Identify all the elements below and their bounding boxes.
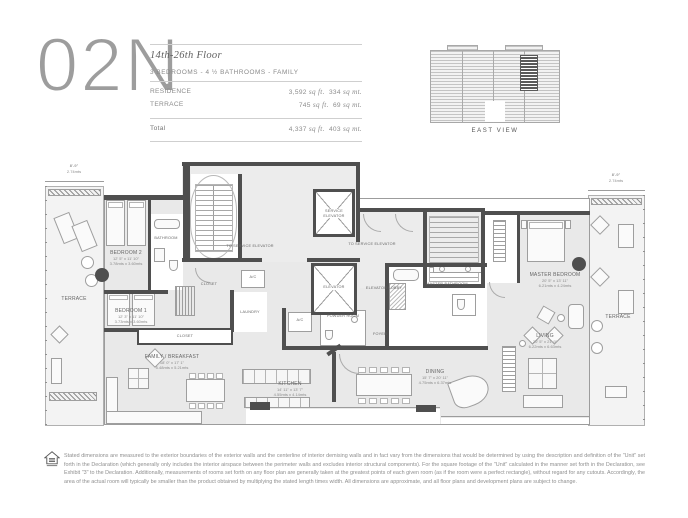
- exterior-notch: [246, 409, 440, 424]
- breakfast-table: [186, 379, 225, 402]
- pillow: [109, 295, 128, 300]
- wall: [356, 162, 360, 242]
- wall: [423, 212, 427, 288]
- room-label-family-breakfast: FAMILY / BREAKFAST18' 0" x 17' 1"5.48mts…: [140, 354, 204, 370]
- pillow: [529, 222, 563, 229]
- room-label-elevator-lobby: ELEVATOR LOBBY: [363, 286, 405, 291]
- area-label: TERRACE: [150, 101, 184, 109]
- structural-column: [572, 257, 586, 271]
- room-label-kitchen: KITCHEN14' 11" x 13' 7"4.55mts x 4.14mts: [258, 381, 322, 397]
- facade-joint: [462, 50, 463, 123]
- terrace-left: [45, 186, 104, 426]
- terrace-table: [81, 256, 94, 269]
- chair: [369, 398, 377, 404]
- toilet: [457, 299, 465, 310]
- pillow: [129, 202, 144, 208]
- room-label-terrace: TERRACE: [593, 314, 643, 320]
- wall: [182, 162, 360, 166]
- area-row-terrace: TERRACE 745 sq ft. 69 sq mt.: [150, 101, 362, 109]
- chair: [391, 398, 399, 404]
- wall: [104, 195, 184, 200]
- outdoor-sofa: [618, 224, 634, 248]
- terrace-table: [591, 320, 603, 332]
- unit-info-panel: 14th-26th Floor 3 BEDROOMS - 4 ½ BATHROO…: [150, 44, 362, 144]
- chair: [380, 398, 388, 404]
- toilet: [169, 260, 178, 271]
- room-label-service-elevator: SERVICE ELEVATOR: [316, 209, 352, 218]
- wall: [238, 174, 242, 262]
- wall: [517, 215, 520, 283]
- wall: [104, 290, 168, 294]
- room-label-dining: DINING15' 7" x 20' 11"4.75mts x 6.37mts: [403, 369, 467, 385]
- equal-housing-icon: [44, 451, 60, 467]
- area-value: 3,592 sq ft. 334 sq mt.: [289, 88, 362, 96]
- room-label-to-service-elevator: TO SERVICE ELEVATOR: [345, 242, 399, 247]
- wall: [481, 212, 485, 288]
- divider: [150, 141, 362, 142]
- dimension-right: 8'-9"2.74mts: [587, 173, 645, 183]
- room-label-living: LIVING20' 5" x 21' 9"6.22mts x 6.63mts: [513, 333, 577, 349]
- chair: [189, 403, 196, 409]
- area-label: Total: [150, 125, 165, 133]
- area-row-total: Total 4,337 sq ft. 403 sq mt.: [150, 125, 362, 133]
- stair-1-treads: [195, 184, 233, 252]
- outdoor-sofa: [618, 290, 634, 314]
- chair: [207, 373, 214, 379]
- wall-pier: [250, 402, 270, 410]
- unit-subtitle: 3 BEDROOMS - 4 ½ BATHROOMS - FAMILY: [150, 69, 299, 76]
- coffee-table: [128, 368, 149, 389]
- area-value: 4,337 sq ft. 403 sq mt.: [289, 125, 362, 133]
- wall-pier: [416, 405, 436, 412]
- area-row-residence: RESIDENCE 3,592 sq ft. 334 sq mt.: [150, 88, 362, 96]
- terrace-mullions: [643, 195, 645, 426]
- terrace-table: [591, 342, 603, 354]
- wall: [307, 258, 360, 262]
- planter: [49, 392, 97, 401]
- media-console: [502, 346, 516, 392]
- room-label-to-service-elevator: TO SERVICE ELEVATOR: [223, 244, 277, 249]
- chair: [358, 398, 366, 404]
- room-label-master-bedroom: MASTER BEDROOM20' 5" x 13' 11"6.21mts x …: [523, 272, 587, 288]
- keyplan-caption: EAST VIEW: [430, 128, 560, 134]
- wall: [332, 352, 336, 402]
- room-label-closet: CLOSET: [191, 282, 227, 287]
- room-label-bathroom: BATHROOM: [146, 236, 186, 241]
- glass-wall-line: [441, 416, 589, 417]
- divider: [150, 44, 362, 45]
- pillow: [134, 295, 153, 300]
- outdoor-sofa: [51, 358, 62, 384]
- sofa: [523, 395, 563, 408]
- wall: [385, 263, 389, 350]
- chair: [369, 367, 377, 373]
- nightstand: [565, 220, 571, 229]
- room-label-bedroom-2: BEDROOM 212' 5" x 11' 10"3.78mts x 3.60m…: [95, 250, 157, 266]
- coffee-table: [528, 358, 557, 389]
- dimension-line: [588, 190, 645, 191]
- room-label-foyer: FOYER: [359, 332, 401, 337]
- dimension-line: [45, 181, 104, 182]
- chair: [216, 403, 223, 409]
- divider: [150, 118, 362, 119]
- chair: [216, 373, 223, 379]
- chair: [198, 403, 205, 409]
- unit-location-highlight: [520, 55, 538, 91]
- wall: [182, 258, 262, 262]
- room-label-master-bathroom: MASTER BATHROOM: [419, 282, 475, 287]
- sectional-sofa: [106, 411, 202, 424]
- wardrobe: [175, 286, 195, 316]
- chair: [207, 403, 214, 409]
- nightstand: [521, 220, 527, 229]
- chaise: [568, 304, 584, 329]
- building-entry-gap: [485, 101, 505, 122]
- wall: [282, 308, 286, 350]
- room-label-powder-room: POWDER ROOM: [322, 314, 364, 319]
- wall: [183, 162, 190, 262]
- structural-column: [95, 268, 109, 282]
- chair: [189, 373, 196, 379]
- dimension-left: 8'-9"2.74mts: [45, 164, 103, 174]
- floor-range: 14th-26th Floor: [150, 50, 222, 61]
- closet-shelving: [493, 220, 506, 262]
- elevator-shaft: ELEVATOR: [311, 263, 357, 315]
- room-label-laundry: LAUNDRY: [232, 310, 268, 315]
- wall: [104, 328, 138, 332]
- toilet: [325, 330, 333, 340]
- wall: [385, 263, 487, 267]
- side-table: [557, 314, 565, 322]
- area-label: RESIDENCE: [150, 88, 191, 96]
- closet-strip: CLOSET: [137, 328, 233, 345]
- disclaimer-text: Stated dimensions are measured to the ex…: [64, 452, 645, 486]
- room-label-ac: A/C: [288, 318, 312, 323]
- divider: [150, 81, 362, 82]
- chair: [402, 398, 410, 404]
- pillow: [108, 202, 123, 208]
- chair: [380, 367, 388, 373]
- exterior-notch: [441, 418, 589, 424]
- room-label-elevator: ELEVATOR: [314, 285, 354, 290]
- room-label-closet: CLOSET: [139, 334, 231, 339]
- planter: [591, 198, 642, 205]
- room-label-ac: A/C: [241, 275, 265, 280]
- bathtub: [393, 269, 419, 281]
- terrace-table: [605, 386, 627, 398]
- bathtub: [154, 219, 180, 229]
- area-value: 745 sq ft. 69 sq mt.: [299, 101, 362, 109]
- chair: [358, 367, 366, 373]
- room-label-terrace: TERRACE: [49, 296, 99, 302]
- planter: [48, 189, 101, 196]
- terrace-mullions: [45, 186, 47, 426]
- chair: [198, 373, 205, 379]
- floor-plan: SERVICE ELEVATOR ELEVATOR CLOSET: [45, 162, 645, 430]
- chair: [391, 367, 399, 373]
- keyplan-east-elevation: EAST VIEW: [430, 44, 560, 136]
- wall: [148, 199, 151, 290]
- wall: [485, 211, 590, 215]
- room-label-bedroom-1: BEDROOM 112' 3" x 11' 10"3.73mts x 3.60m…: [100, 308, 162, 324]
- wall: [282, 346, 488, 350]
- service-elevator-shaft: SERVICE ELEVATOR: [313, 189, 355, 237]
